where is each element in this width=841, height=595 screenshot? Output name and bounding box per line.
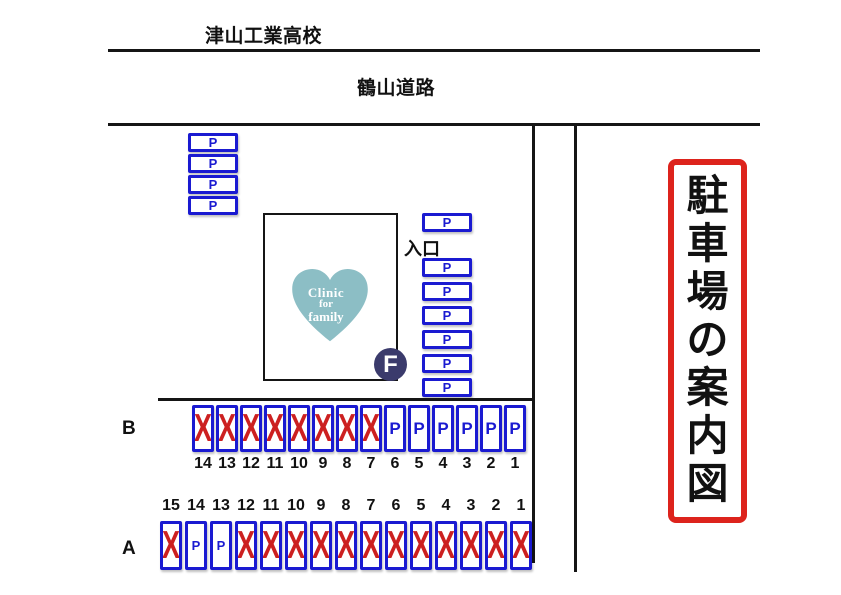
stall-number: 9 xyxy=(319,455,328,473)
stall-number: 11 xyxy=(267,455,284,473)
stall-box: P xyxy=(432,405,454,452)
stall-box: X xyxy=(288,405,310,452)
stall-box: X xyxy=(335,521,357,570)
sign-title-char: 案 xyxy=(686,364,728,412)
stall-b-10: X10 xyxy=(288,405,310,473)
stall-b-3: P3 xyxy=(456,405,478,473)
stall-number: 10 xyxy=(290,455,308,473)
parking-p-mark: P xyxy=(209,157,218,170)
stall-number: 12 xyxy=(237,497,255,515)
street-parking-space: P xyxy=(422,213,472,232)
parking-p-mark: P xyxy=(209,178,218,191)
parking-p-mark: P xyxy=(485,420,496,437)
occupied-x-mark: X xyxy=(487,526,505,565)
parking-guide-map: 津山工業高校 鶴山道路 PPPP Clinic for family F P 入… xyxy=(0,0,841,595)
stall-box: P xyxy=(480,405,502,452)
school-label: 津山工業高校 xyxy=(205,21,322,48)
street-parking-space: P xyxy=(422,354,472,373)
parking-p-mark: P xyxy=(209,136,218,149)
occupied-x-mark: X xyxy=(362,526,380,565)
sign-title-char: 車 xyxy=(686,220,728,268)
stall-b-14: X14 xyxy=(192,405,214,473)
street-parking-space: P xyxy=(422,306,472,325)
stall-number: 14 xyxy=(187,497,205,515)
stall-number: 4 xyxy=(439,455,448,473)
parking-p-mark: P xyxy=(192,539,201,552)
occupied-x-mark: X xyxy=(262,526,280,565)
stall-box: P xyxy=(185,521,207,570)
street-parking-space: P xyxy=(422,282,472,301)
stall-number: 13 xyxy=(218,455,236,473)
street-parking-space: P xyxy=(188,196,238,215)
parking-p-mark: P xyxy=(443,381,452,394)
stall-box: P xyxy=(504,405,526,452)
parking-p-mark: P xyxy=(443,309,452,322)
stall-b-4: P4 xyxy=(432,405,454,473)
stall-a-5: 5X xyxy=(410,497,432,570)
stall-number: 13 xyxy=(212,497,230,515)
occupied-x-mark: X xyxy=(194,409,212,448)
stall-b-12: X12 xyxy=(240,405,262,473)
stall-number: 8 xyxy=(343,455,352,473)
building-outline: Clinic for family F xyxy=(263,213,398,381)
parking-p-mark: P xyxy=(443,285,452,298)
stall-box: X xyxy=(240,405,262,452)
stall-number: 3 xyxy=(467,497,476,515)
stall-a-12: 12X xyxy=(235,497,257,570)
street-parking-space: P xyxy=(188,154,238,173)
stall-number: 8 xyxy=(342,497,351,515)
street-parking-space: P xyxy=(188,175,238,194)
sign-title-char: 場 xyxy=(686,268,728,316)
clinic-heart-logo: Clinic for family F xyxy=(288,262,372,350)
occupied-x-mark: X xyxy=(338,409,356,448)
stall-a-11: 11X xyxy=(260,497,282,570)
stall-box: X xyxy=(310,521,332,570)
right-street-parking-column: PPPPPP xyxy=(422,258,472,397)
stall-box: X xyxy=(312,405,334,452)
stall-number: 6 xyxy=(391,455,400,473)
stall-a-6: 6X xyxy=(385,497,407,570)
occupied-x-mark: X xyxy=(162,526,180,565)
occupied-x-mark: X xyxy=(312,526,330,565)
parking-p-mark: P xyxy=(443,357,452,370)
occupied-x-mark: X xyxy=(462,526,480,565)
occupied-x-mark: X xyxy=(387,526,405,565)
stall-a-13: 13P xyxy=(210,497,232,570)
stall-box: X xyxy=(192,405,214,452)
stall-b-13: X13 xyxy=(216,405,238,473)
occupied-x-mark: X xyxy=(266,409,284,448)
occupied-x-mark: X xyxy=(287,526,305,565)
street-parking-space: P xyxy=(188,133,238,152)
stall-box: X xyxy=(360,521,382,570)
occupied-x-mark: X xyxy=(512,526,530,565)
stall-box: X xyxy=(460,521,482,570)
stall-box: P xyxy=(210,521,232,570)
stall-number: 15 xyxy=(162,497,180,515)
stall-a-3: 3X xyxy=(460,497,482,570)
stall-box: X xyxy=(385,521,407,570)
stall-number: 7 xyxy=(367,455,376,473)
stall-a-1: 1X xyxy=(510,497,532,570)
stall-number: 5 xyxy=(417,497,426,515)
stall-a-10: 10X xyxy=(285,497,307,570)
row-b-boundary-line xyxy=(158,398,535,401)
row-a-stalls: 15X14P13P12X11X10X9X8X7X6X5X4X3X2X1X xyxy=(160,497,532,570)
parking-p-mark: P xyxy=(413,420,424,437)
stall-number: 12 xyxy=(242,455,260,473)
stall-box: X xyxy=(336,405,358,452)
street-parking-space: P xyxy=(422,378,472,397)
stall-box: X xyxy=(485,521,507,570)
left-street-parking-column: PPPP xyxy=(188,133,238,215)
stall-number: 2 xyxy=(487,455,496,473)
parking-p-mark: P xyxy=(443,261,452,274)
row-b-label: B xyxy=(122,418,136,440)
stall-b-11: X11 xyxy=(264,405,286,473)
stall-box: X xyxy=(216,405,238,452)
parking-p-mark: P xyxy=(461,420,472,437)
stall-number: 11 xyxy=(263,497,280,515)
stall-box: X xyxy=(410,521,432,570)
occupied-x-mark: X xyxy=(237,526,255,565)
row-a-label: A xyxy=(122,538,136,560)
stall-a-8: 8X xyxy=(335,497,357,570)
occupied-x-mark: X xyxy=(314,409,332,448)
parking-p-mark: P xyxy=(389,420,400,437)
stall-b-5: P5 xyxy=(408,405,430,473)
stall-box: X xyxy=(435,521,457,570)
stall-box: X xyxy=(160,521,182,570)
occupied-x-mark: X xyxy=(362,409,380,448)
parking-p-mark: P xyxy=(509,420,520,437)
occupied-x-mark: X xyxy=(337,526,355,565)
parking-p-mark: P xyxy=(209,199,218,212)
stall-b-1: P1 xyxy=(504,405,526,473)
street-parking-space: P xyxy=(422,258,472,277)
stall-a-15: 15X xyxy=(160,497,182,570)
stall-a-14: 14P xyxy=(185,497,207,570)
occupied-x-mark: X xyxy=(242,409,260,448)
stall-b-6: P6 xyxy=(384,405,406,473)
stall-box: P xyxy=(384,405,406,452)
road-label: 鶴山道路 xyxy=(357,73,435,100)
parking-p-mark: P xyxy=(443,333,452,346)
stall-b-8: X8 xyxy=(336,405,358,473)
stall-a-7: 7X xyxy=(360,497,382,570)
stall-number: 14 xyxy=(194,455,212,473)
sign-title-char: 内 xyxy=(686,412,728,460)
school-road-line xyxy=(108,49,760,52)
occupied-x-mark: X xyxy=(290,409,308,448)
sign-title-char: 図 xyxy=(686,460,728,508)
parking-sign: 駐車場の案内図 xyxy=(668,159,747,523)
stall-box: X xyxy=(260,521,282,570)
stall-box: X xyxy=(360,405,382,452)
stall-number: 2 xyxy=(492,497,501,515)
occupied-x-mark: X xyxy=(412,526,430,565)
street-parking-space: P xyxy=(422,330,472,349)
stall-number: 3 xyxy=(463,455,472,473)
row-b-stalls: X14X13X12X11X10X9X8X7P6P5P4P3P2P1 xyxy=(192,405,526,473)
stall-number: 5 xyxy=(415,455,424,473)
parking-p-mark: P xyxy=(217,539,226,552)
stall-number: 1 xyxy=(511,455,520,473)
clinic-logo-f-badge: F xyxy=(374,348,407,381)
stall-b-7: X7 xyxy=(360,405,382,473)
stall-a-4: 4X xyxy=(435,497,457,570)
stall-number: 9 xyxy=(317,497,326,515)
stall-box: X xyxy=(510,521,532,570)
stall-b-2: P2 xyxy=(480,405,502,473)
occupied-x-mark: X xyxy=(218,409,236,448)
stall-a-9: 9X xyxy=(310,497,332,570)
side-road-line-right xyxy=(574,125,577,572)
stall-box: X xyxy=(235,521,257,570)
parking-p-mark: P xyxy=(443,216,452,229)
side-road-line-left xyxy=(532,125,535,563)
stall-number: 7 xyxy=(367,497,376,515)
parking-p-mark: P xyxy=(437,420,448,437)
stall-number: 4 xyxy=(442,497,451,515)
stall-box: P xyxy=(408,405,430,452)
sign-title-char: の xyxy=(686,316,728,364)
stall-number: 6 xyxy=(392,497,401,515)
occupied-x-mark: X xyxy=(437,526,455,565)
stall-box: P xyxy=(456,405,478,452)
right-street-parking-column-top: P xyxy=(422,213,472,232)
stall-b-9: X9 xyxy=(312,405,334,473)
sign-title-char: 駐 xyxy=(686,172,728,220)
stall-number: 1 xyxy=(517,497,526,515)
stall-box: X xyxy=(264,405,286,452)
stall-a-2: 2X xyxy=(485,497,507,570)
clinic-name-line3: family xyxy=(288,310,364,323)
stall-number: 10 xyxy=(287,497,305,515)
road-line xyxy=(108,123,760,126)
stall-box: X xyxy=(285,521,307,570)
